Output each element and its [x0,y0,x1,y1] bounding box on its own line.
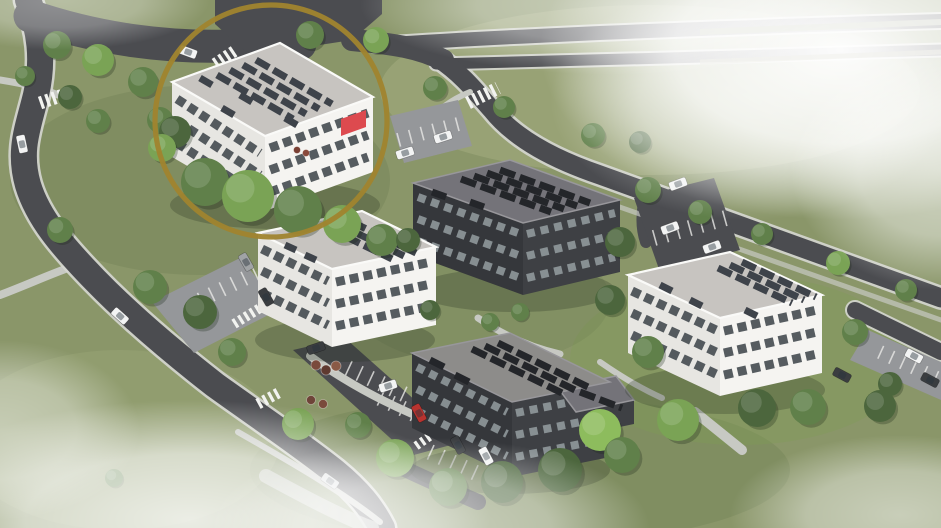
patio-umbrella [294,147,301,154]
aerial-render-image [0,0,941,528]
patio-umbrella [319,400,328,409]
patio-umbrella [303,150,310,157]
site-plan-render [0,0,941,528]
patio-umbrella [331,361,341,371]
patio-umbrella [307,396,316,405]
patio-umbrella [311,360,321,370]
patio-umbrella [321,365,331,375]
